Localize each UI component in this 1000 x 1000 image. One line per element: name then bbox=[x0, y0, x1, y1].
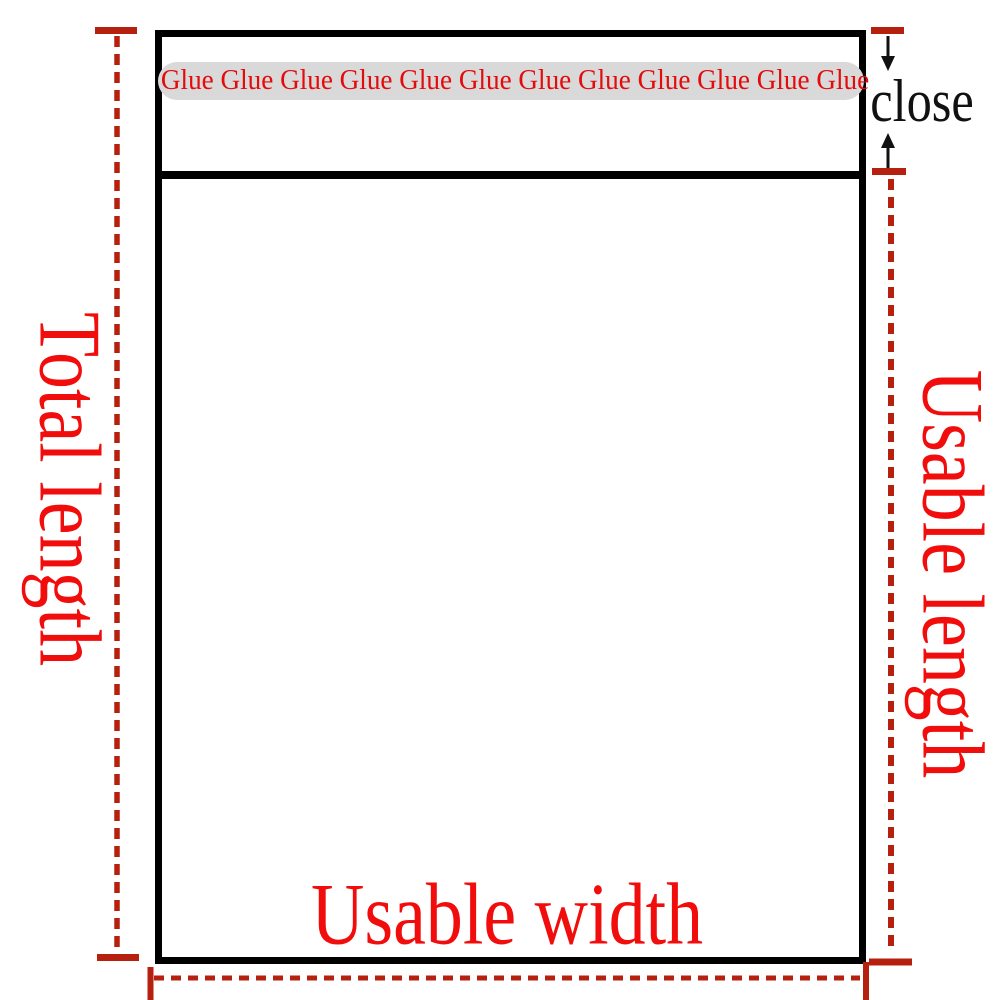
close-label: close bbox=[870, 68, 974, 134]
fold-line bbox=[155, 171, 866, 179]
arrow-down-icon bbox=[881, 36, 895, 71]
glue-strip-label: Glue Glue Glue Glue Glue Glue Glue Glue … bbox=[158, 62, 843, 100]
usable-width-label: Usable width bbox=[311, 868, 703, 965]
usable-length-label: Usable length bbox=[903, 370, 1000, 779]
mailing-bag-diagram: Glue Glue Glue Glue Glue Glue Glue Glue … bbox=[0, 0, 1000, 1000]
arrow-up-icon bbox=[881, 133, 895, 168]
total-length-label: Total length bbox=[20, 312, 117, 666]
glue-strip: Glue Glue Glue Glue Glue Glue Glue Glue … bbox=[158, 62, 864, 100]
